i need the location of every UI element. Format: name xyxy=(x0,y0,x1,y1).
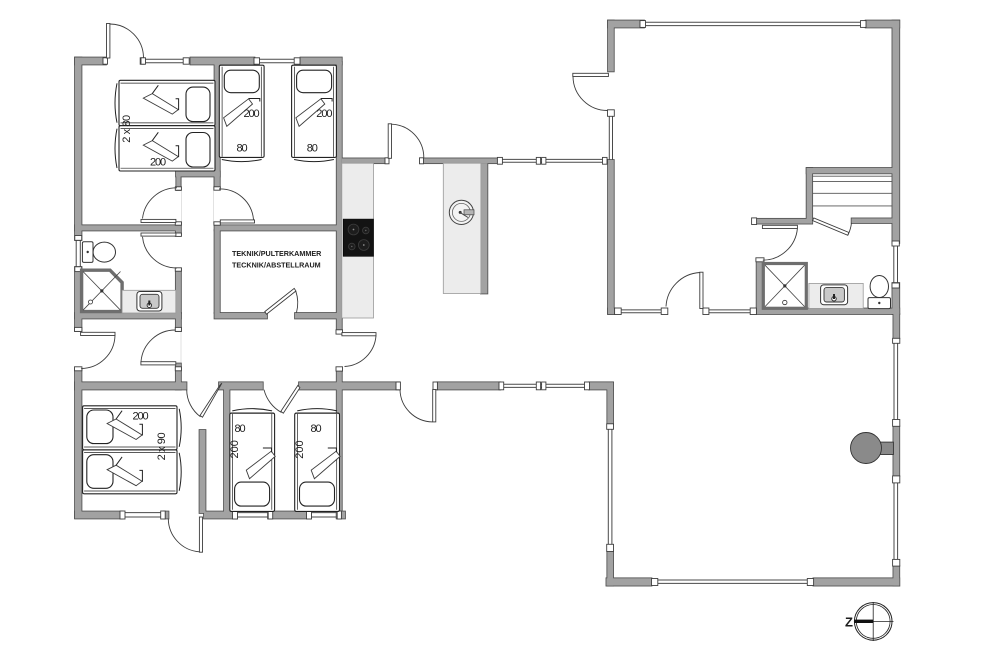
svg-text:200: 200 xyxy=(316,108,332,120)
svg-text:80: 80 xyxy=(307,142,318,154)
svg-text:Z: Z xyxy=(845,615,853,630)
svg-text:200: 200 xyxy=(244,108,260,120)
svg-text:200: 200 xyxy=(132,411,148,423)
svg-text:80: 80 xyxy=(237,142,248,154)
svg-text:80: 80 xyxy=(235,423,246,435)
svg-text:200: 200 xyxy=(294,440,306,458)
svg-text:TECKNIK/ABSTELLRAUM: TECKNIK/ABSTELLRAUM xyxy=(232,261,321,270)
svg-text:2 x 80: 2 x 80 xyxy=(121,115,133,143)
svg-text:TEKNIK/PULTERKAMMER: TEKNIK/PULTERKAMMER xyxy=(232,249,322,258)
svg-text:80: 80 xyxy=(311,423,322,435)
svg-text:200: 200 xyxy=(229,440,241,458)
svg-text:2 x 90: 2 x 90 xyxy=(156,433,168,461)
svg-text:200: 200 xyxy=(150,157,166,169)
